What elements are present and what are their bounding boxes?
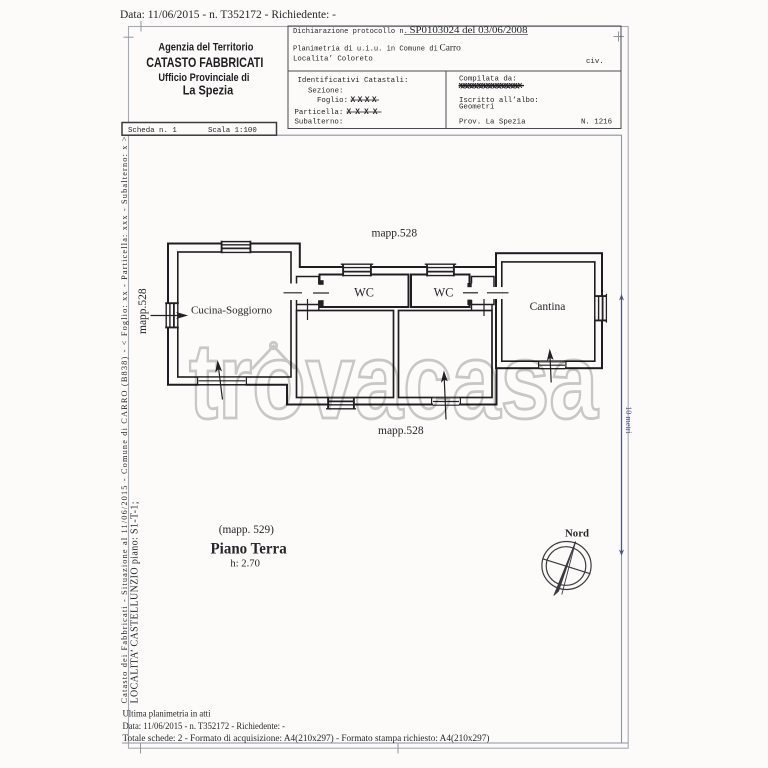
svg-text:Cantina: Cantina xyxy=(530,301,566,313)
svg-text:Nord: Nord xyxy=(565,528,589,540)
svg-text:civ.: civ. xyxy=(586,58,604,66)
svg-text:Geometri: Geometri xyxy=(459,103,495,111)
svg-text:Cucina-Soggiorno: Cucina-Soggiorno xyxy=(191,305,272,317)
svg-text:XXXX: XXXX xyxy=(351,96,380,105)
svg-text:Carro: Carro xyxy=(440,44,462,54)
svg-text:Data: 11/06/2015 - n. T352172: Data: 11/06/2015 - n. T352172 - Richiede… xyxy=(123,722,286,732)
svg-text:Data: 11/06/2015 - n. T352172: Data: 11/06/2015 - n. T352172 - Richiede… xyxy=(120,9,336,21)
svg-text:Foglio:: Foglio: xyxy=(317,97,348,105)
svg-text:Scala 1:100: Scala 1:100 xyxy=(208,127,257,135)
svg-text:WC: WC xyxy=(354,285,374,299)
svg-text:Scheda n. 1: Scheda n. 1 xyxy=(128,127,177,135)
svg-text:Prov. La Spezia: Prov. La Spezia xyxy=(459,119,526,127)
svg-text:mapp.528: mapp.528 xyxy=(372,228,418,240)
svg-text:Piano Terra: Piano Terra xyxy=(211,541,287,558)
svg-text:mapp.528: mapp.528 xyxy=(137,288,149,334)
svg-text:WC: WC xyxy=(434,285,454,299)
svg-text:La Spezia: La Spezia xyxy=(183,83,234,98)
svg-text:XXXXXXXXXXXXX: XXXXXXXXXXXXX xyxy=(460,83,520,91)
svg-text:Subalterno:: Subalterno: xyxy=(295,118,344,126)
svg-text:Dichiarazione protocollo n.: Dichiarazione protocollo n. xyxy=(293,28,408,36)
svg-text:(mapp. 529): (mapp. 529) xyxy=(219,524,274,536)
svg-text:Particella:: Particella: xyxy=(295,109,344,117)
svg-text:10 metri: 10 metri xyxy=(624,406,633,434)
svg-text:Agenzia del Territorio: Agenzia del Territorio xyxy=(158,42,253,54)
svg-text:trovacasa: trovacasa xyxy=(189,320,599,441)
svg-text:Catasto dei Fabbricati - Situa: Catasto dei Fabbricati - Situazione al 1… xyxy=(120,136,129,703)
svg-text:CATASTO FABBRICATI: CATASTO FABBRICATI xyxy=(146,55,263,70)
svg-text:Ultima planimetria in atti: Ultima planimetria in atti xyxy=(123,710,211,720)
svg-text:XXXX: XXXX xyxy=(347,108,382,117)
svg-text:N. 1216: N. 1216 xyxy=(581,118,612,126)
svg-text:Totale schede: 2 - Formato di: Totale schede: 2 - Formato di acquisizio… xyxy=(123,733,490,744)
svg-text:Localita’ Coloreto: Localita’ Coloreto xyxy=(293,55,373,63)
svg-text:Sezione:: Sezione: xyxy=(308,87,343,95)
svg-text:Identificativi Catastali:: Identificativi Catastali: xyxy=(298,77,409,85)
svg-text:LOCALITA’ CASTELLUNZIO piano:: LOCALITA’ CASTELLUNZIO piano: S1-T-1; xyxy=(129,501,140,703)
svg-text:Planimetria di u.i.u. in Comun: Planimetria di u.i.u. in Comune di xyxy=(293,45,438,53)
svg-text:h: 2.70: h: 2.70 xyxy=(230,558,260,570)
